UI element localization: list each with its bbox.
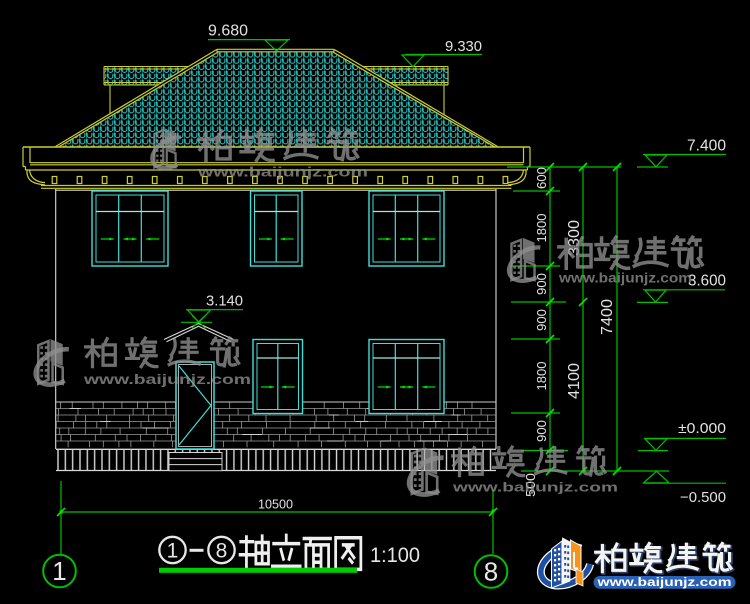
svg-text:1: 1 <box>167 540 179 563</box>
svg-text:900: 900 <box>534 420 549 442</box>
svg-text:10500: 10500 <box>258 497 293 512</box>
svg-text:−0.500: −0.500 <box>680 490 726 506</box>
svg-text:1800: 1800 <box>534 362 549 391</box>
svg-text:www.baijunjz.com: www.baijunjz.com <box>197 164 368 180</box>
svg-text:7400: 7400 <box>599 299 616 335</box>
svg-text:www.baijunjz.com: www.baijunjz.com <box>83 372 251 387</box>
svg-text:8: 8 <box>484 557 498 587</box>
svg-text:600: 600 <box>534 167 549 189</box>
svg-text:8: 8 <box>216 540 228 563</box>
svg-text:±0.000: ±0.000 <box>678 420 726 437</box>
svg-text:900: 900 <box>534 273 549 295</box>
svg-text:www.baijunjz.com: www.baijunjz.com <box>596 577 731 589</box>
svg-text:9.330: 9.330 <box>445 38 482 55</box>
svg-text:1800: 1800 <box>534 214 549 243</box>
svg-text:www.baijunjz.com: www.baijunjz.com <box>452 480 618 495</box>
svg-text:900: 900 <box>534 309 549 331</box>
svg-text:3.600: 3.600 <box>688 273 726 290</box>
svg-text:1: 1 <box>52 556 66 586</box>
svg-text:4100: 4100 <box>566 363 583 399</box>
svg-text:1:100: 1:100 <box>370 544 420 567</box>
svg-text:9.680: 9.680 <box>208 23 248 40</box>
svg-text:7.400: 7.400 <box>687 138 726 155</box>
svg-text:3.140: 3.140 <box>206 293 243 310</box>
svg-text:www.baijunjz.com: www.baijunjz.com <box>558 271 692 286</box>
